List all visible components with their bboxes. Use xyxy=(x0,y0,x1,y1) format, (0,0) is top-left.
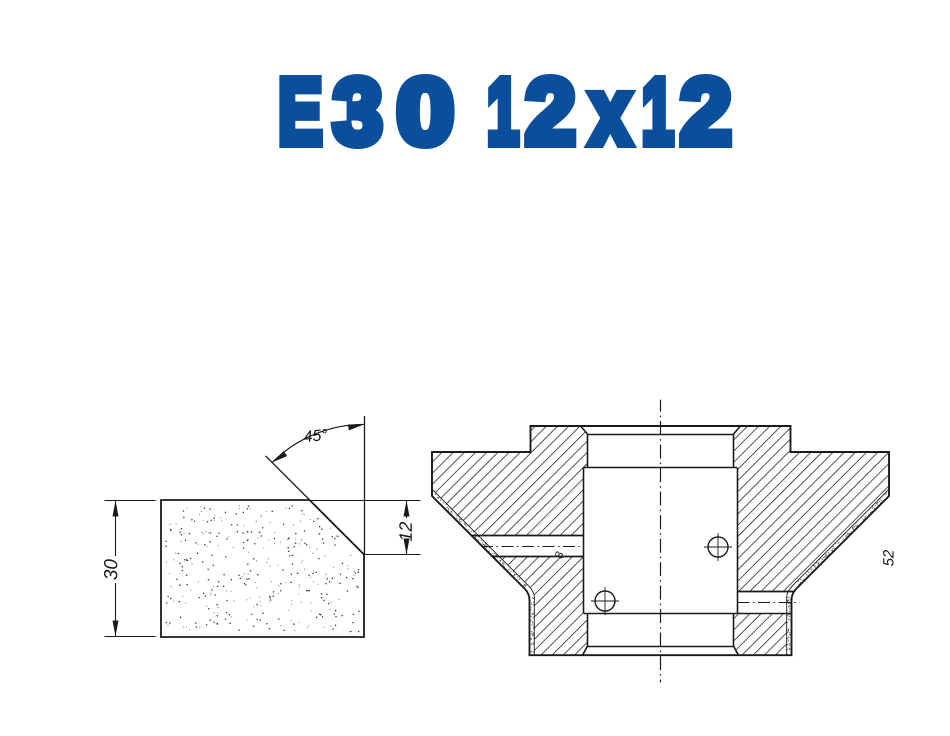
svg-text:1: 1 xyxy=(642,61,674,164)
svg-text:2: 2 xyxy=(680,59,731,164)
svg-text:0: 0 xyxy=(397,59,454,163)
svg-text:x: x xyxy=(590,59,631,163)
svg-text:1: 1 xyxy=(487,61,519,164)
svg-text:E: E xyxy=(278,61,322,165)
svg-text:3: 3 xyxy=(333,61,382,164)
svg-text:2: 2 xyxy=(525,60,575,164)
